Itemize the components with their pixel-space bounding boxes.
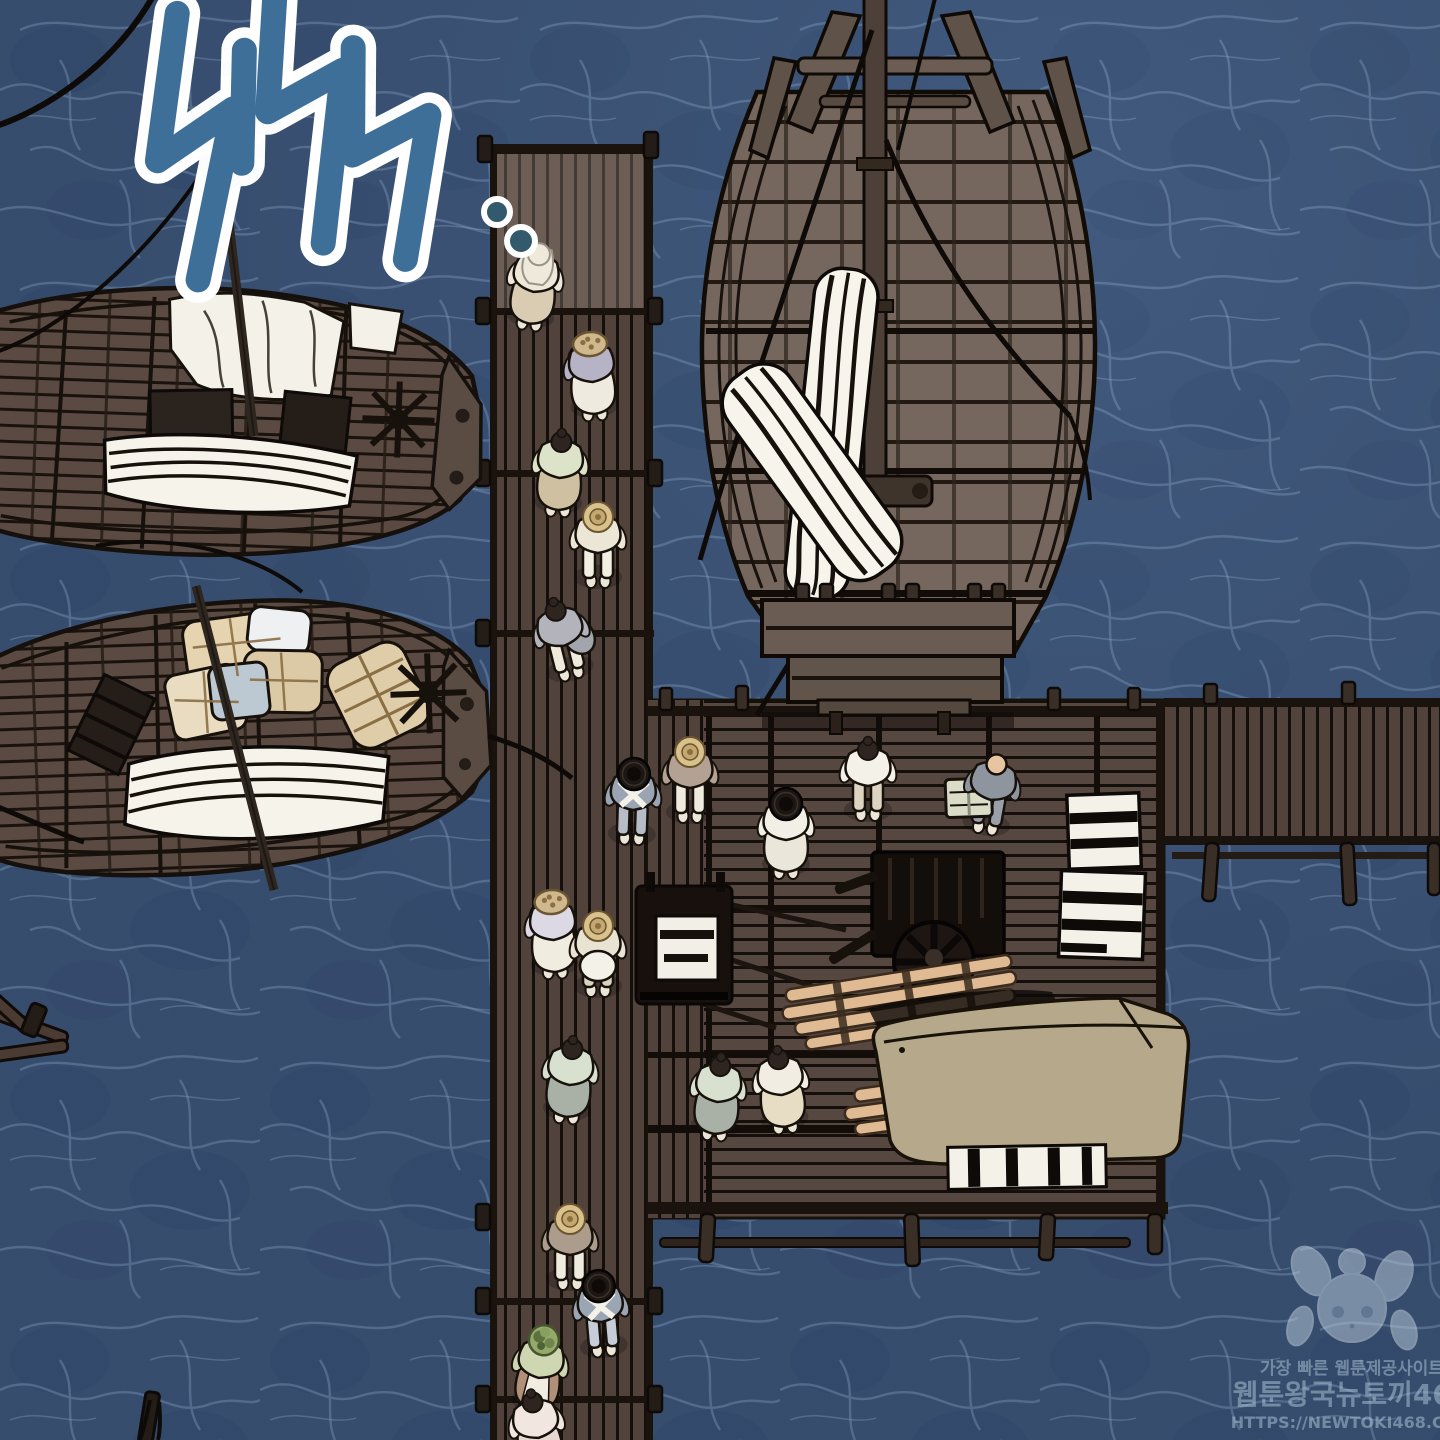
watermark-site-name: 웹툰왕국뉴토끼468 bbox=[1233, 1378, 1440, 1411]
canvas-cargo bbox=[873, 998, 1188, 1164]
harbor-scene: 철썩 가장 빠른 웹툰제공사이트 웹툰왕국뉴토끼468 HTTPS://NEWT… bbox=[0, 0, 1440, 1440]
handcart bbox=[636, 872, 732, 1004]
white-crates-bottom bbox=[948, 1145, 1107, 1190]
watermark-tagline: 가장 빠른 웹툰제공사이트 bbox=[1260, 1359, 1440, 1379]
cross-beam bbox=[798, 58, 992, 74]
white-cloth-small bbox=[348, 304, 403, 354]
white-crates-right bbox=[1059, 793, 1146, 960]
comic-panel: 철썩 가장 빠른 웹툰제공사이트 웹툰왕국뉴토끼468 HTTPS://NEWT… bbox=[0, 0, 1440, 1440]
watermark-url: HTTPS://NEWTOKI468.COM bbox=[1231, 1413, 1440, 1432]
